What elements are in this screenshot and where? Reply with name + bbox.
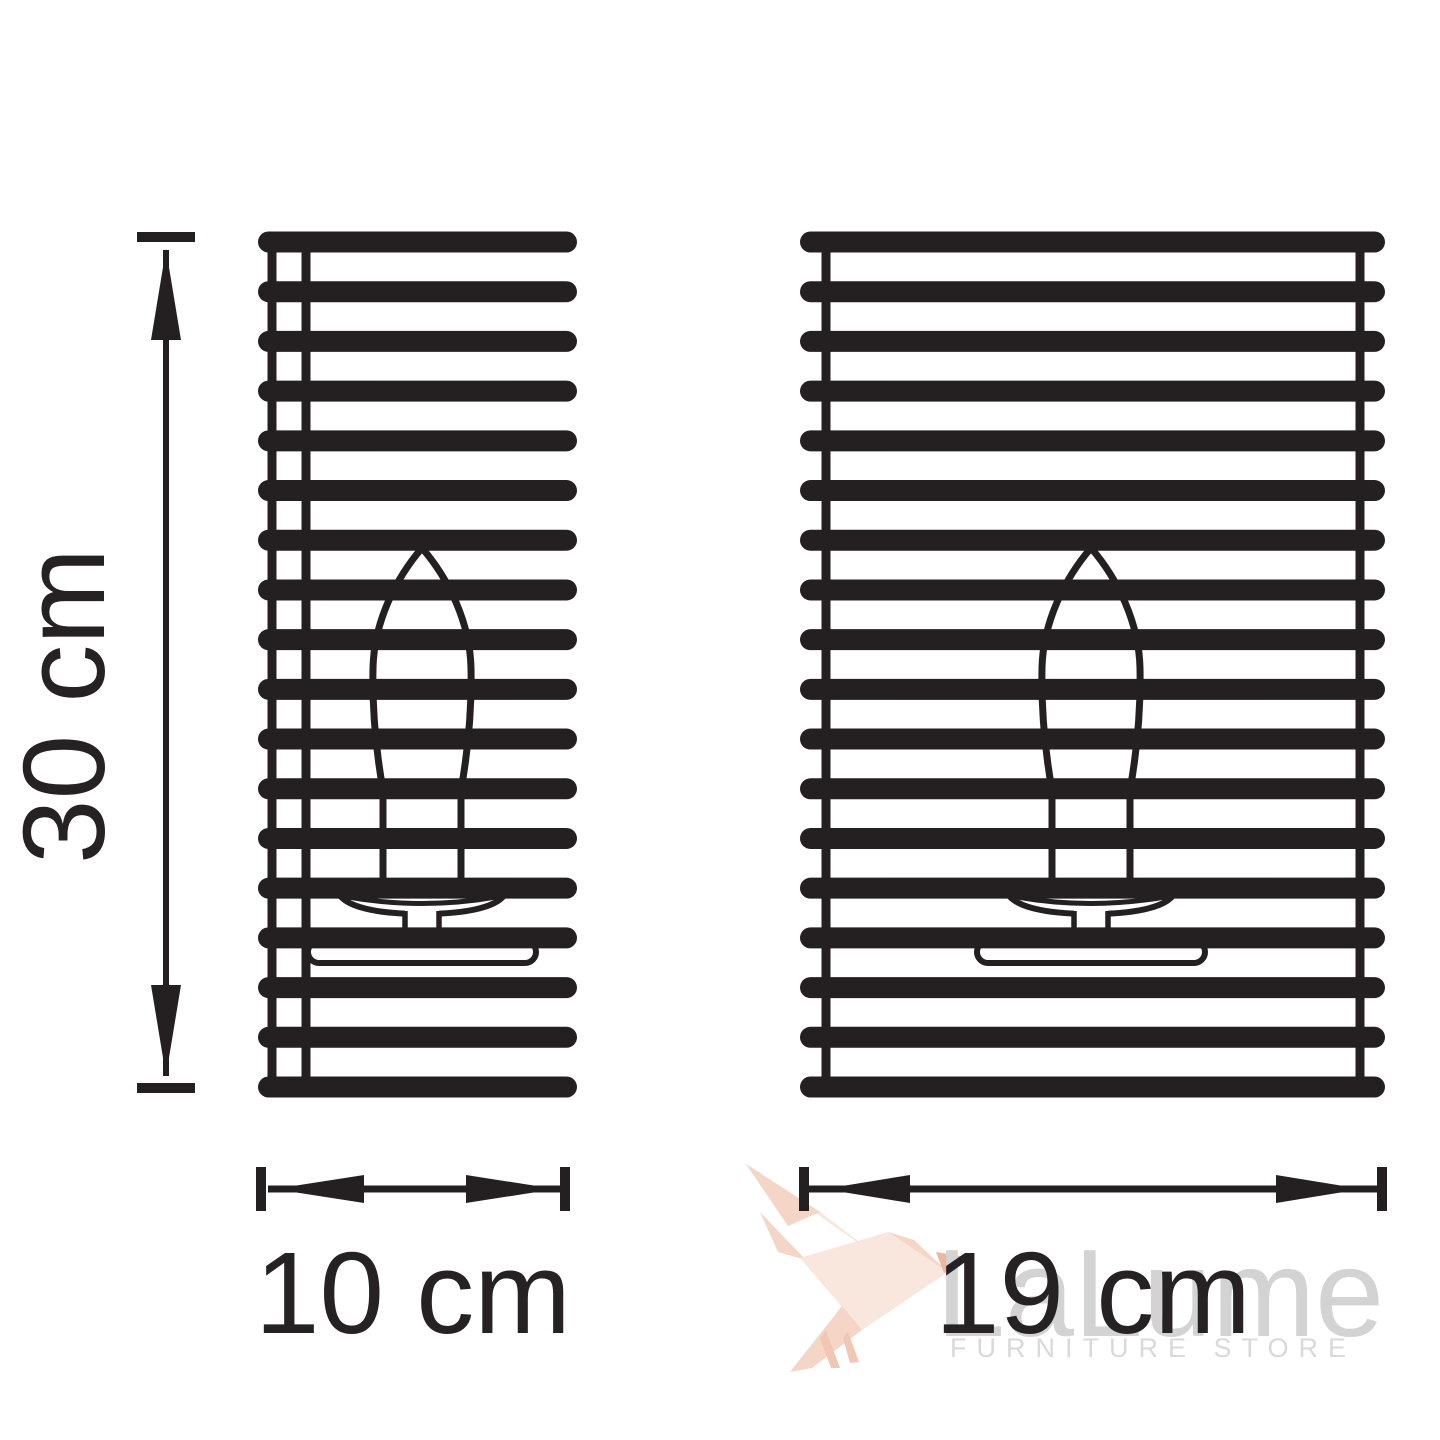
width-dimension-small: 10 cm (255, 1167, 571, 1358)
diagram-canvas: LaLume FURNITURE STORE 30 cm 10 cm (0, 0, 1440, 1440)
width-large-arrow-left (824, 1175, 910, 1203)
width-small-left-tick (256, 1167, 266, 1211)
width-small-arrow-right (466, 1175, 556, 1203)
sconce-front-view-large (811, 233, 1375, 1096)
height-dim-label: 30 cm (0, 548, 129, 864)
height-dimension: 30 cm (0, 232, 195, 1093)
height-dim-arrow-down (151, 985, 181, 1076)
height-dim-bottom-tick (137, 1083, 195, 1093)
width-small-right-tick (560, 1167, 570, 1211)
width-small-label: 10 cm (255, 1228, 571, 1358)
width-large-left-tick (799, 1167, 809, 1211)
height-dim-top-tick (137, 232, 195, 242)
height-dim-arrow-up (151, 249, 181, 340)
width-large-arrow-right (1276, 1175, 1362, 1203)
width-small-arrow-left (274, 1175, 364, 1203)
width-large-label: 19 cm (935, 1228, 1251, 1358)
bird-body (800, 1232, 948, 1330)
sconce-front-view-small (269, 233, 567, 1096)
